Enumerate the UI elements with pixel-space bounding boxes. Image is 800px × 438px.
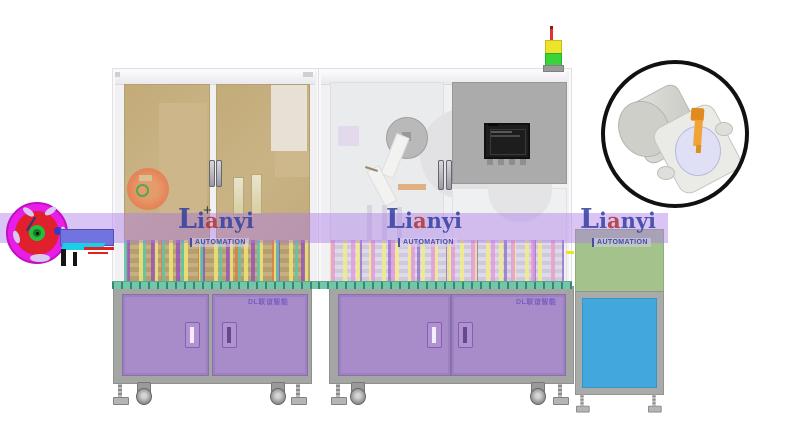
- leveling-foot: [575, 395, 589, 414]
- watermark: Lianyi AUTOMATION: [386, 210, 476, 249]
- watermark-subtitle: AUTOMATION: [398, 238, 457, 247]
- tower-light-base: [543, 65, 564, 72]
- left-cabinet-label: DL联谊智能: [248, 297, 288, 307]
- reel-axle: [36, 232, 39, 235]
- right-table-edge: [318, 281, 572, 289]
- left-enclosure-top-rail: [115, 71, 315, 85]
- flange-lug: [715, 122, 733, 136]
- caster-wheel-disc: [270, 388, 286, 405]
- tower-light-antenna: [550, 26, 553, 41]
- foot-stem: [580, 395, 583, 406]
- left-enclosure-door-handle: [216, 160, 222, 187]
- handle-slot: [190, 327, 194, 343]
- tape-strip: [88, 252, 108, 254]
- caster-wheel-disc: [350, 388, 366, 405]
- foot-base: [291, 397, 307, 405]
- glass-reflection: [271, 85, 307, 151]
- handle-slot: [463, 327, 467, 343]
- left-table-edge: [112, 281, 318, 289]
- tape-strip: [84, 247, 114, 250]
- frame-bracket: [303, 72, 313, 77]
- left-cabinet-handle: [185, 322, 200, 348]
- caster-wheel-disc: [530, 388, 546, 405]
- panel-button: [520, 159, 526, 165]
- leveling-foot: [112, 384, 128, 406]
- right-enclosure-door-handle: [438, 160, 444, 190]
- foot-stem: [118, 384, 122, 397]
- reel-slot: [30, 254, 50, 262]
- foot-base: [331, 397, 347, 405]
- left-enclosure-door-handle: [209, 160, 215, 187]
- internal-reel-label: [139, 175, 152, 181]
- foot-base: [576, 406, 590, 413]
- watermark-subtitle: AUTOMATION: [190, 238, 249, 247]
- yellow-marker: [566, 251, 574, 254]
- left-cabinet-handle: [222, 322, 237, 348]
- watermark: Lianyi AUTOMATION: [580, 210, 670, 249]
- glass-patch: [398, 184, 426, 190]
- frame-bracket: [115, 72, 120, 77]
- caster-wheel: [134, 382, 152, 404]
- control-panel: [452, 82, 567, 184]
- right-cabinet-handle: [427, 322, 442, 348]
- foot-stem: [652, 395, 655, 406]
- side-unit-blue-panel: [582, 298, 657, 388]
- watermark: Lianyi AUTOMATION: [178, 210, 268, 249]
- foot-stem: [336, 384, 340, 397]
- foot-base: [553, 397, 569, 405]
- feeder-post: [73, 252, 77, 266]
- foot-base: [113, 397, 129, 405]
- caster-wheel-disc: [136, 388, 152, 405]
- watermark-brand: Lianyi: [386, 210, 476, 231]
- machine-render-scene: DL联谊智能 DL联谊智能 Lianyi AUTOMATIO: [0, 0, 800, 438]
- right-cabinet-label: DL联谊智能: [516, 297, 556, 307]
- watermark-brand: Lianyi: [178, 210, 268, 231]
- glass-reflection: [275, 151, 309, 177]
- internal-reel-hub: [136, 184, 149, 197]
- leveling-foot: [330, 384, 346, 406]
- caster-wheel: [528, 382, 546, 404]
- watermark-brand: Lianyi: [580, 210, 670, 231]
- panel-button: [487, 159, 493, 165]
- right-enclosure-door-handle: [446, 160, 452, 190]
- hmi-screen: [484, 123, 530, 159]
- flange-lug: [657, 166, 675, 180]
- panel-button: [498, 159, 504, 165]
- foot-stem: [296, 384, 300, 397]
- handle-slot: [432, 327, 436, 343]
- detail-callout-circle: [601, 60, 749, 208]
- leveling-foot: [552, 384, 568, 406]
- hmi-tab: [488, 123, 498, 126]
- panel-button: [509, 159, 515, 165]
- watermark-subtitle: AUTOMATION: [592, 238, 651, 247]
- hmi-window: [490, 129, 526, 155]
- foot-stem: [558, 384, 562, 397]
- leveling-foot: [647, 395, 661, 414]
- caster-wheel: [348, 382, 366, 404]
- glass-patch: [338, 126, 359, 146]
- crosshair-marker: +: [203, 202, 212, 219]
- foot-base: [648, 406, 662, 413]
- caster-wheel: [268, 382, 286, 404]
- right-cabinet-handle: [458, 322, 473, 348]
- handle-slot: [227, 327, 231, 343]
- leveling-foot: [290, 384, 306, 406]
- pin-tip: [696, 145, 702, 153]
- feeder-post: [61, 249, 66, 266]
